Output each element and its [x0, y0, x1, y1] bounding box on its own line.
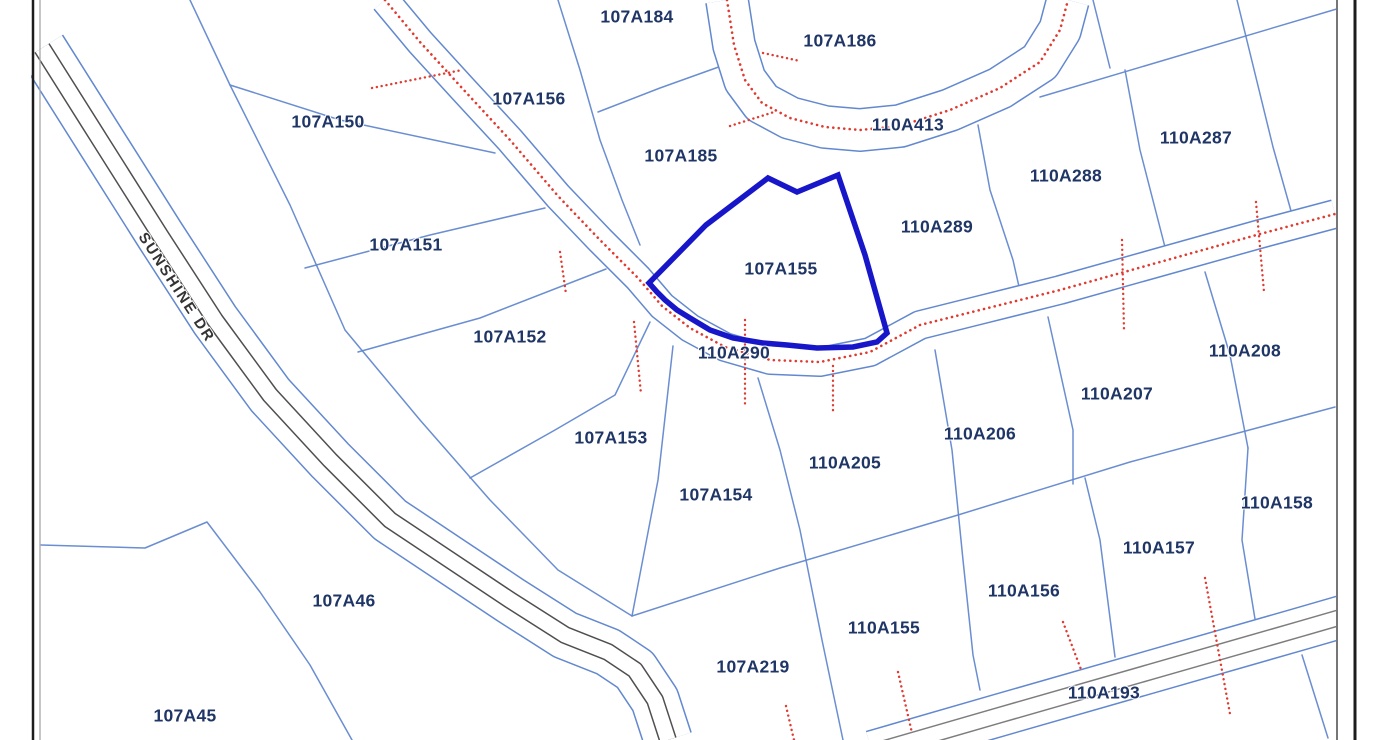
parcel-label-107A150: 107A150 — [291, 112, 364, 132]
parcel-label-107A154: 107A154 — [679, 485, 752, 505]
parcel-label-110A158: 110A158 — [1241, 493, 1313, 513]
parcel-label-107A46: 107A46 — [312, 591, 375, 611]
parcel-label-107A45: 107A45 — [153, 706, 216, 726]
parcel-label-107A152: 107A152 — [473, 327, 546, 347]
parcel-label-110A287: 110A287 — [1160, 128, 1232, 148]
left-margin — [0, 0, 31, 740]
parcel-label-107A156: 107A156 — [492, 89, 565, 109]
parcel-label-110A208: 110A208 — [1209, 341, 1281, 361]
parcel-label-110A413: 110A413 — [872, 115, 944, 135]
parcel-label-107A184: 107A184 — [600, 7, 673, 27]
parcel-label-110A288: 110A288 — [1030, 166, 1102, 186]
parcel-label-107A151: 107A151 — [369, 235, 442, 255]
parcel-map: 107A184107A186107A156110A413110A287107A1… — [0, 0, 1383, 740]
right-margin — [1336, 0, 1383, 740]
parcel-label-110A206: 110A206 — [944, 424, 1016, 444]
parcel-label-110A156: 110A156 — [988, 581, 1060, 601]
parcel-label-107A219: 107A219 — [716, 657, 789, 677]
parcel-label-107A155: 107A155 — [744, 259, 817, 279]
parcel-label-110A207: 110A207 — [1081, 384, 1153, 404]
map-background — [0, 0, 1383, 740]
parcel-label-110A289: 110A289 — [901, 217, 973, 237]
parcel-label-110A290: 110A290 — [698, 343, 770, 363]
parcel-label-107A153: 107A153 — [574, 428, 647, 448]
parcel-label-110A205: 110A205 — [809, 453, 881, 473]
parcel-label-110A155: 110A155 — [848, 618, 920, 638]
plat-map-viewport: 107A184107A186107A156110A413110A287107A1… — [0, 0, 1383, 740]
parcel-label-107A185: 107A185 — [644, 146, 717, 166]
parcel-label-110A193: 110A193 — [1068, 683, 1140, 703]
parcel-label-107A186: 107A186 — [803, 31, 876, 51]
parcel-label-110A157: 110A157 — [1123, 538, 1195, 558]
